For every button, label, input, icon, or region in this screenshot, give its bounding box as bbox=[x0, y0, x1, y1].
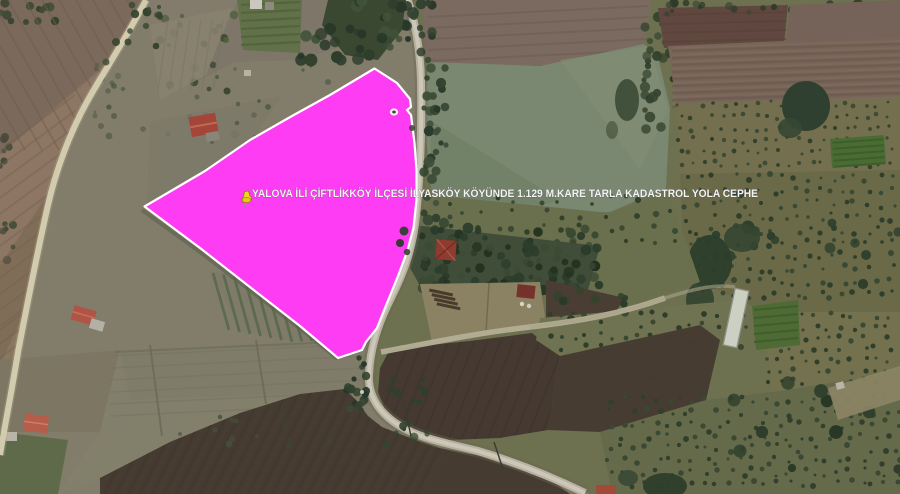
svg-text:YALOVA İLİ ÇİFTLİKKÖY İLÇESİ İ: YALOVA İLİ ÇİFTLİKKÖY İLÇESİ İLYASKÖY KÖ… bbox=[252, 187, 758, 200]
